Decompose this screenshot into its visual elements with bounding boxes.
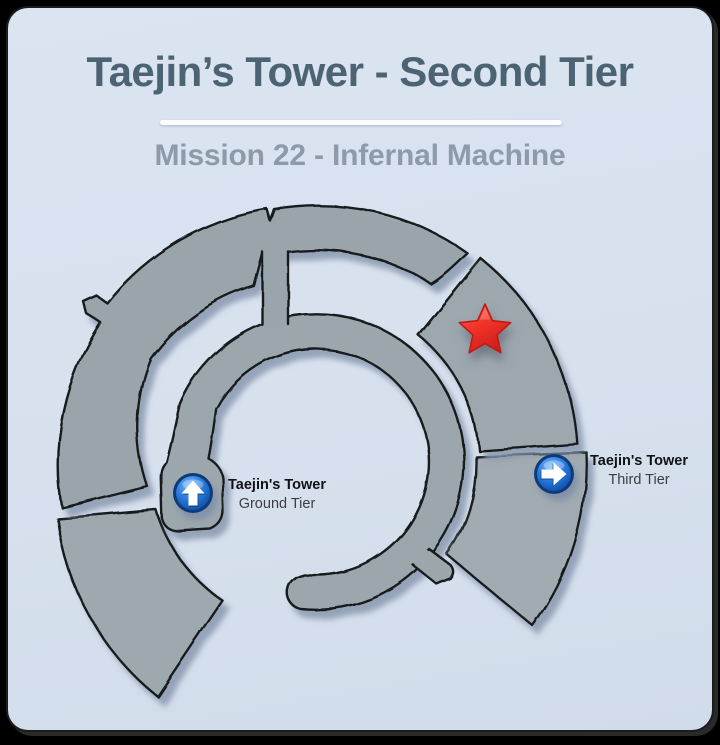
page-background: { "window": { "frame_color": "#000000", …	[0, 0, 720, 745]
map-landmasses	[57, 206, 586, 697]
exit-third-name: Taejin's Tower	[590, 453, 688, 469]
arrow-up-circle-icon	[173, 473, 213, 513]
exit-label-ground-tier: Taejin's Tower Ground Tier	[228, 477, 326, 512]
band-ring-connector	[262, 250, 288, 327]
exit-third-tier: Third Tier	[608, 472, 669, 488]
exit-ground-name: Taejin's Tower	[228, 477, 326, 493]
map-card: Taejin’s Tower - Second Tier Mission 22 …	[8, 8, 712, 730]
segment-bottom-left	[57, 509, 223, 696]
exit-ground-tier: Ground Tier	[239, 496, 316, 512]
exit-label-third-tier: Taejin's Tower Third Tier	[590, 453, 688, 488]
tier-map: Taejin's Tower Ground Tier Taejin's Towe…	[0, 0, 720, 745]
arrow-right-circle-icon	[534, 454, 574, 494]
